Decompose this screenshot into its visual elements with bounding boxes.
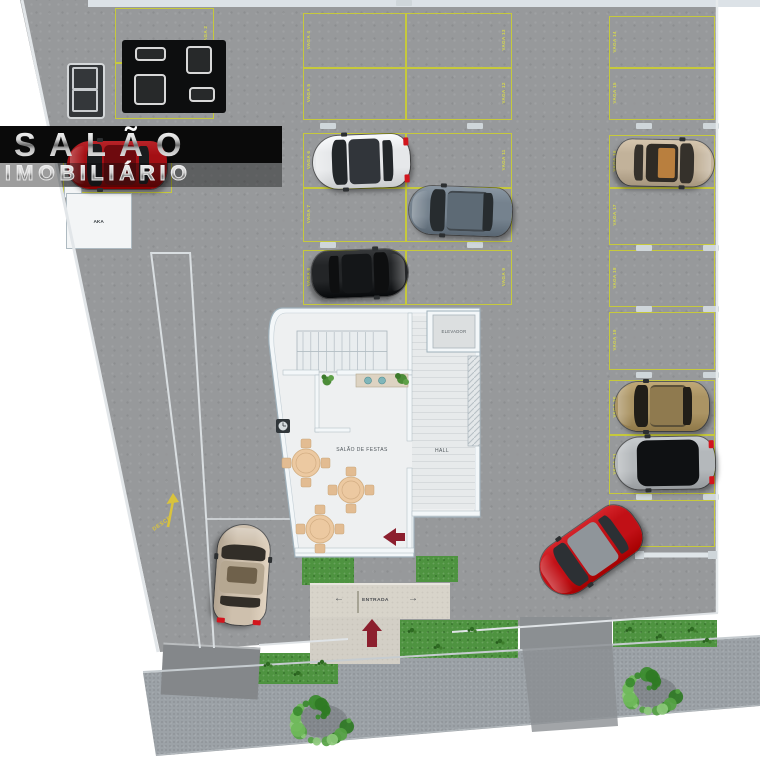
silver-sports-car-hood [618,443,634,485]
black-car [311,248,409,298]
beige-car-driving-mirror [214,553,218,559]
silver-sports-car-mirror [644,434,650,438]
red-car-driving [529,497,650,604]
gray-minivan-rear-glass [482,193,494,231]
brand-name: SALÃO [0,126,282,163]
cars-layer [0,0,760,768]
white-hatchback [312,133,411,189]
white-hatchback-tail-light [403,137,408,145]
logo-door-icon [67,63,105,119]
tan-sedan-windshield [679,143,694,183]
gold-suv-windshield [634,385,648,427]
gray-minivan-mirror [440,183,446,187]
white-hatchback-mirror [341,132,347,136]
black-car-roof [341,253,373,294]
gold-suv-roof [650,385,688,426]
black-car-rear-glass [329,255,340,292]
gold-suv-rear-glass [683,387,692,425]
beige-car-driving-tail-light [217,617,225,622]
red-car-driving-mirror [587,581,594,588]
white-hatchback-tail-light [404,174,409,182]
tan-sedan-rear-glass [633,145,643,181]
gray-minivan-hood [411,190,428,229]
black-car-mirror [374,295,380,299]
logo-building-icon [122,40,226,113]
logo-window [135,47,166,61]
site-plan-canvas: VAGA 1VAGA 2VAGA 3VAGA 4VAGA 5VAGA 6VAGA… [0,0,760,768]
logo-window [186,46,212,74]
tan-sedan [616,139,715,187]
tan-sedan-mirror [678,185,684,189]
white-hatchback-mirror [342,187,348,191]
silver-sports-car-tail-light [709,440,714,448]
silver-sports-car-glass [637,440,700,487]
beige-car-driving-windshield [221,544,267,562]
gold-suv-mirror [643,379,649,383]
silver-sports-car-tail-light [709,476,714,484]
white-hatchback-hood [315,141,331,184]
logo-door-cell [72,89,98,112]
gray-minivan-mirror [438,233,444,237]
tan-sedan-interior [658,148,675,178]
logo-window [134,74,166,105]
gold-suv [615,382,709,431]
logo-window [189,87,215,102]
white-hatchback-rear-glass [382,139,393,181]
logo-door-cell [72,67,98,90]
beige-car-driving-sunroof [227,566,257,584]
silver-sports-car [615,436,716,490]
red-parked-car-mirror [97,188,103,192]
gray-minivan-windshield [428,189,445,231]
black-car-windshield [374,252,390,293]
white-hatchback-roof [348,138,381,184]
beige-car-driving-tail-light [253,620,261,625]
black-car-mirror [372,246,378,250]
gold-suv-hood [618,386,632,425]
silver-sports-car-mirror [645,488,651,492]
beige-car-driving [213,523,272,626]
white-hatchback-windshield [331,139,347,185]
beige-car-driving-mirror [268,557,272,563]
gold-suv-mirror [643,430,649,434]
tan-sedan-mirror [679,137,685,141]
gray-minivan [408,185,513,237]
brand-subtitle: IMOBILIÁRIO [0,160,282,188]
